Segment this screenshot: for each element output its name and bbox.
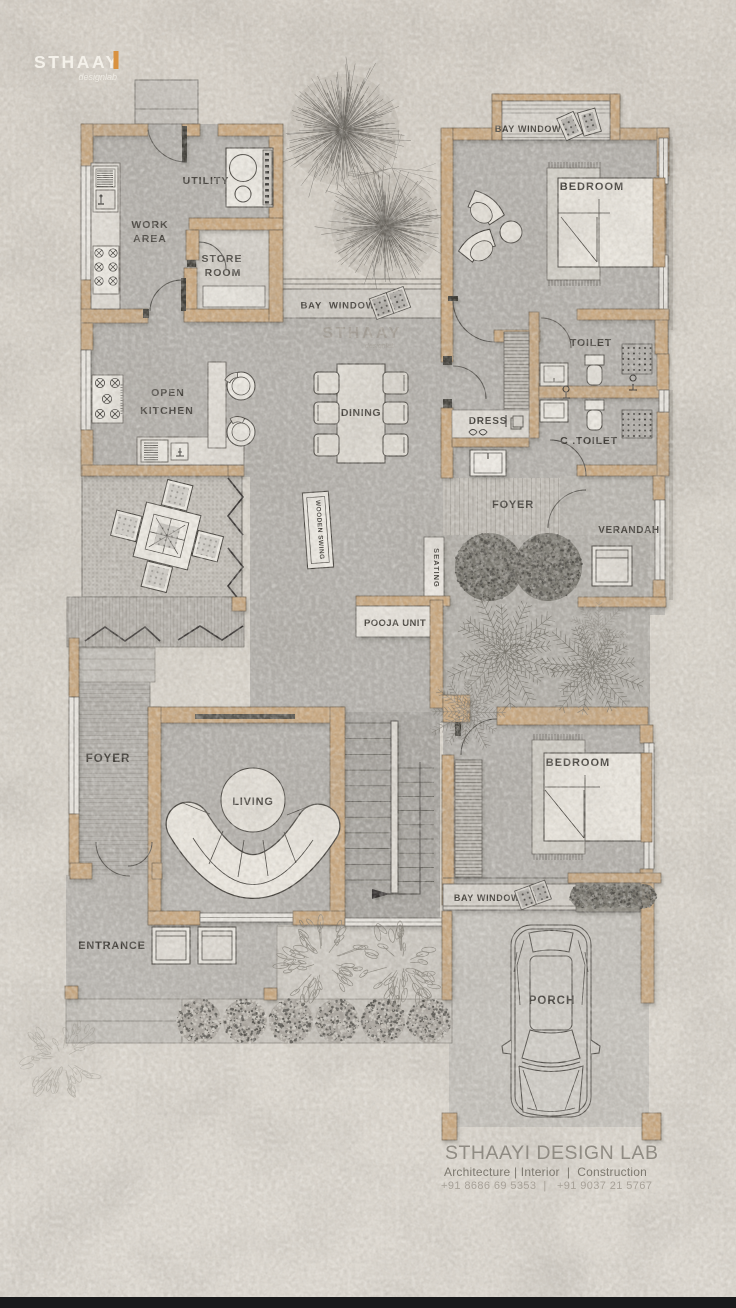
svg-text:Architecture | Interior | Co: Architecture | Interior | Construction [444, 1165, 647, 1179]
svg-text:+91 8686 69 5353 | +91 9037: +91 8686 69 5353 | +91 9037 21 5767 [441, 1180, 652, 1192]
svg-text:designlab: designlab [78, 72, 117, 82]
svg-text:STHAAY: STHAAY [34, 52, 120, 72]
svg-text:STHAAYI DESIGN LAB: STHAAYI DESIGN LAB [445, 1142, 658, 1164]
